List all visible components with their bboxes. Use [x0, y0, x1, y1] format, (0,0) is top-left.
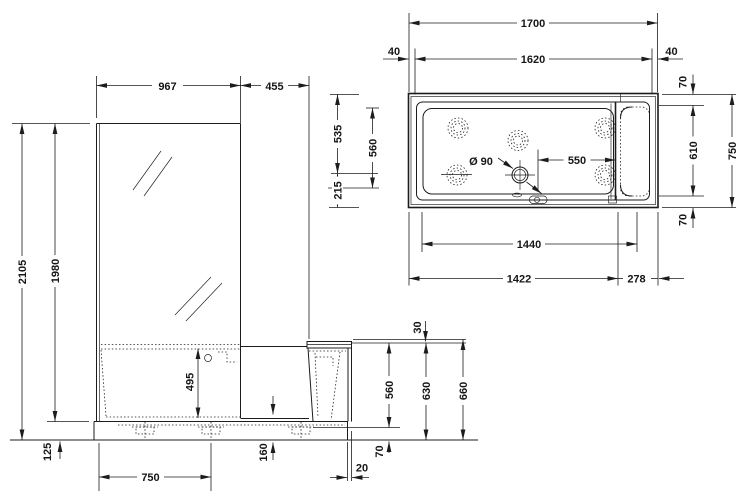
jet-icon — [447, 165, 467, 185]
dim-door-width: 455 — [241, 76, 310, 339]
dim-label-70: 70 — [374, 445, 386, 457]
dim-base-gap: 70 — [374, 442, 389, 458]
dim-label-70-bottom: 70 — [678, 214, 690, 226]
dim-seat-lip: 30 — [353, 321, 466, 342]
dim-label-30: 30 — [412, 321, 424, 333]
dim-label-750-plan: 750 — [727, 142, 739, 160]
dim-drain-diameter: Ø 90 — [469, 156, 513, 169]
plan-view: 1700 1620 40 40 70 — [328, 13, 739, 286]
dim-inner-length: 1620 — [415, 49, 652, 95]
dim-total-width: 750 — [662, 95, 739, 208]
dim-label-1700: 1700 — [521, 18, 545, 30]
dim-rim-to-base: 560 — [352, 343, 466, 428]
dim-floor-length: 1440 — [422, 212, 637, 252]
jet-icon — [448, 118, 468, 138]
door-opening — [241, 348, 313, 422]
dim-foot-spacing: 750 — [99, 443, 211, 491]
dim-rim-left: 40 — [383, 46, 409, 59]
dim-rim-to-floor: 630 — [421, 343, 434, 440]
dim-rim-bottom: 70 — [678, 208, 694, 228]
dim-label-610: 610 — [688, 141, 700, 159]
waste-leader — [527, 182, 542, 194]
dim-label-455: 455 — [265, 81, 283, 93]
dim-rim-top: 70 — [659, 75, 736, 106]
dim-drain-to-seat: 550 — [538, 150, 616, 191]
jet-icon — [595, 118, 615, 138]
jet-icon — [508, 131, 528, 151]
glass-reflection-marks — [133, 151, 222, 321]
dim-inner-depth: 495 — [185, 349, 199, 419]
dim-label-20: 20 — [356, 463, 368, 475]
dim-rim-right: 40 — [658, 46, 683, 59]
dim-seat-to-floor: 660 — [458, 340, 471, 441]
dim-label-160: 160 — [258, 443, 270, 461]
overflow-icon — [205, 355, 212, 362]
dim-label-215: 215 — [333, 181, 345, 199]
dim-seat-depth: 278 — [618, 212, 684, 286]
dim-label-967: 967 — [158, 81, 176, 93]
bathtub-front — [101, 345, 307, 418]
dim-label-560: 560 — [384, 381, 396, 399]
dim-inner-width: 610 — [659, 106, 704, 197]
jet-icon — [595, 165, 615, 185]
dim-label-drain: Ø 90 — [469, 156, 493, 168]
dim-label-535: 535 — [333, 125, 345, 143]
dim-label-1440: 1440 — [517, 239, 541, 251]
dim-glass-height: 1980 — [47, 124, 89, 422]
grip-detail — [218, 352, 237, 362]
dim-label-1422: 1422 — [507, 274, 531, 286]
dim-drain-offset-bottom: 215 — [329, 174, 359, 208]
dim-entry-height: 160 — [258, 443, 273, 462]
dim-plinth-height: 125 — [42, 442, 60, 462]
dim-label-40-right: 40 — [665, 46, 677, 58]
dim-label-495: 495 — [185, 373, 197, 391]
technical-drawing: 967 455 2105 1980 495 — [0, 0, 750, 500]
seat-plan — [609, 94, 650, 203]
plinth — [94, 422, 348, 441]
dim-label-2105: 2105 — [17, 260, 29, 284]
dim-label-560-plan: 560 — [368, 139, 380, 157]
dim-panel-offset: 20 — [330, 431, 369, 481]
dim-label-1980: 1980 — [50, 259, 62, 283]
dim-total-length: 1700 — [409, 13, 658, 92]
glass-panel — [97, 124, 241, 422]
headrest-detail — [316, 357, 333, 366]
dim-label-1620: 1620 — [521, 54, 545, 66]
dim-label-278: 278 — [627, 274, 645, 286]
dim-label-40-left: 40 — [388, 46, 400, 58]
dim-label-660: 660 — [458, 382, 470, 400]
dim-label-630: 630 — [421, 382, 433, 400]
drawing-canvas: 967 455 2105 1980 495 — [0, 0, 750, 500]
dim-label-750: 750 — [141, 472, 159, 484]
dim-label-125: 125 — [42, 443, 54, 461]
dim-label-70-top: 70 — [678, 76, 690, 88]
dim-label-550: 550 — [568, 155, 586, 167]
dim-glass-width: 967 — [97, 76, 241, 123]
